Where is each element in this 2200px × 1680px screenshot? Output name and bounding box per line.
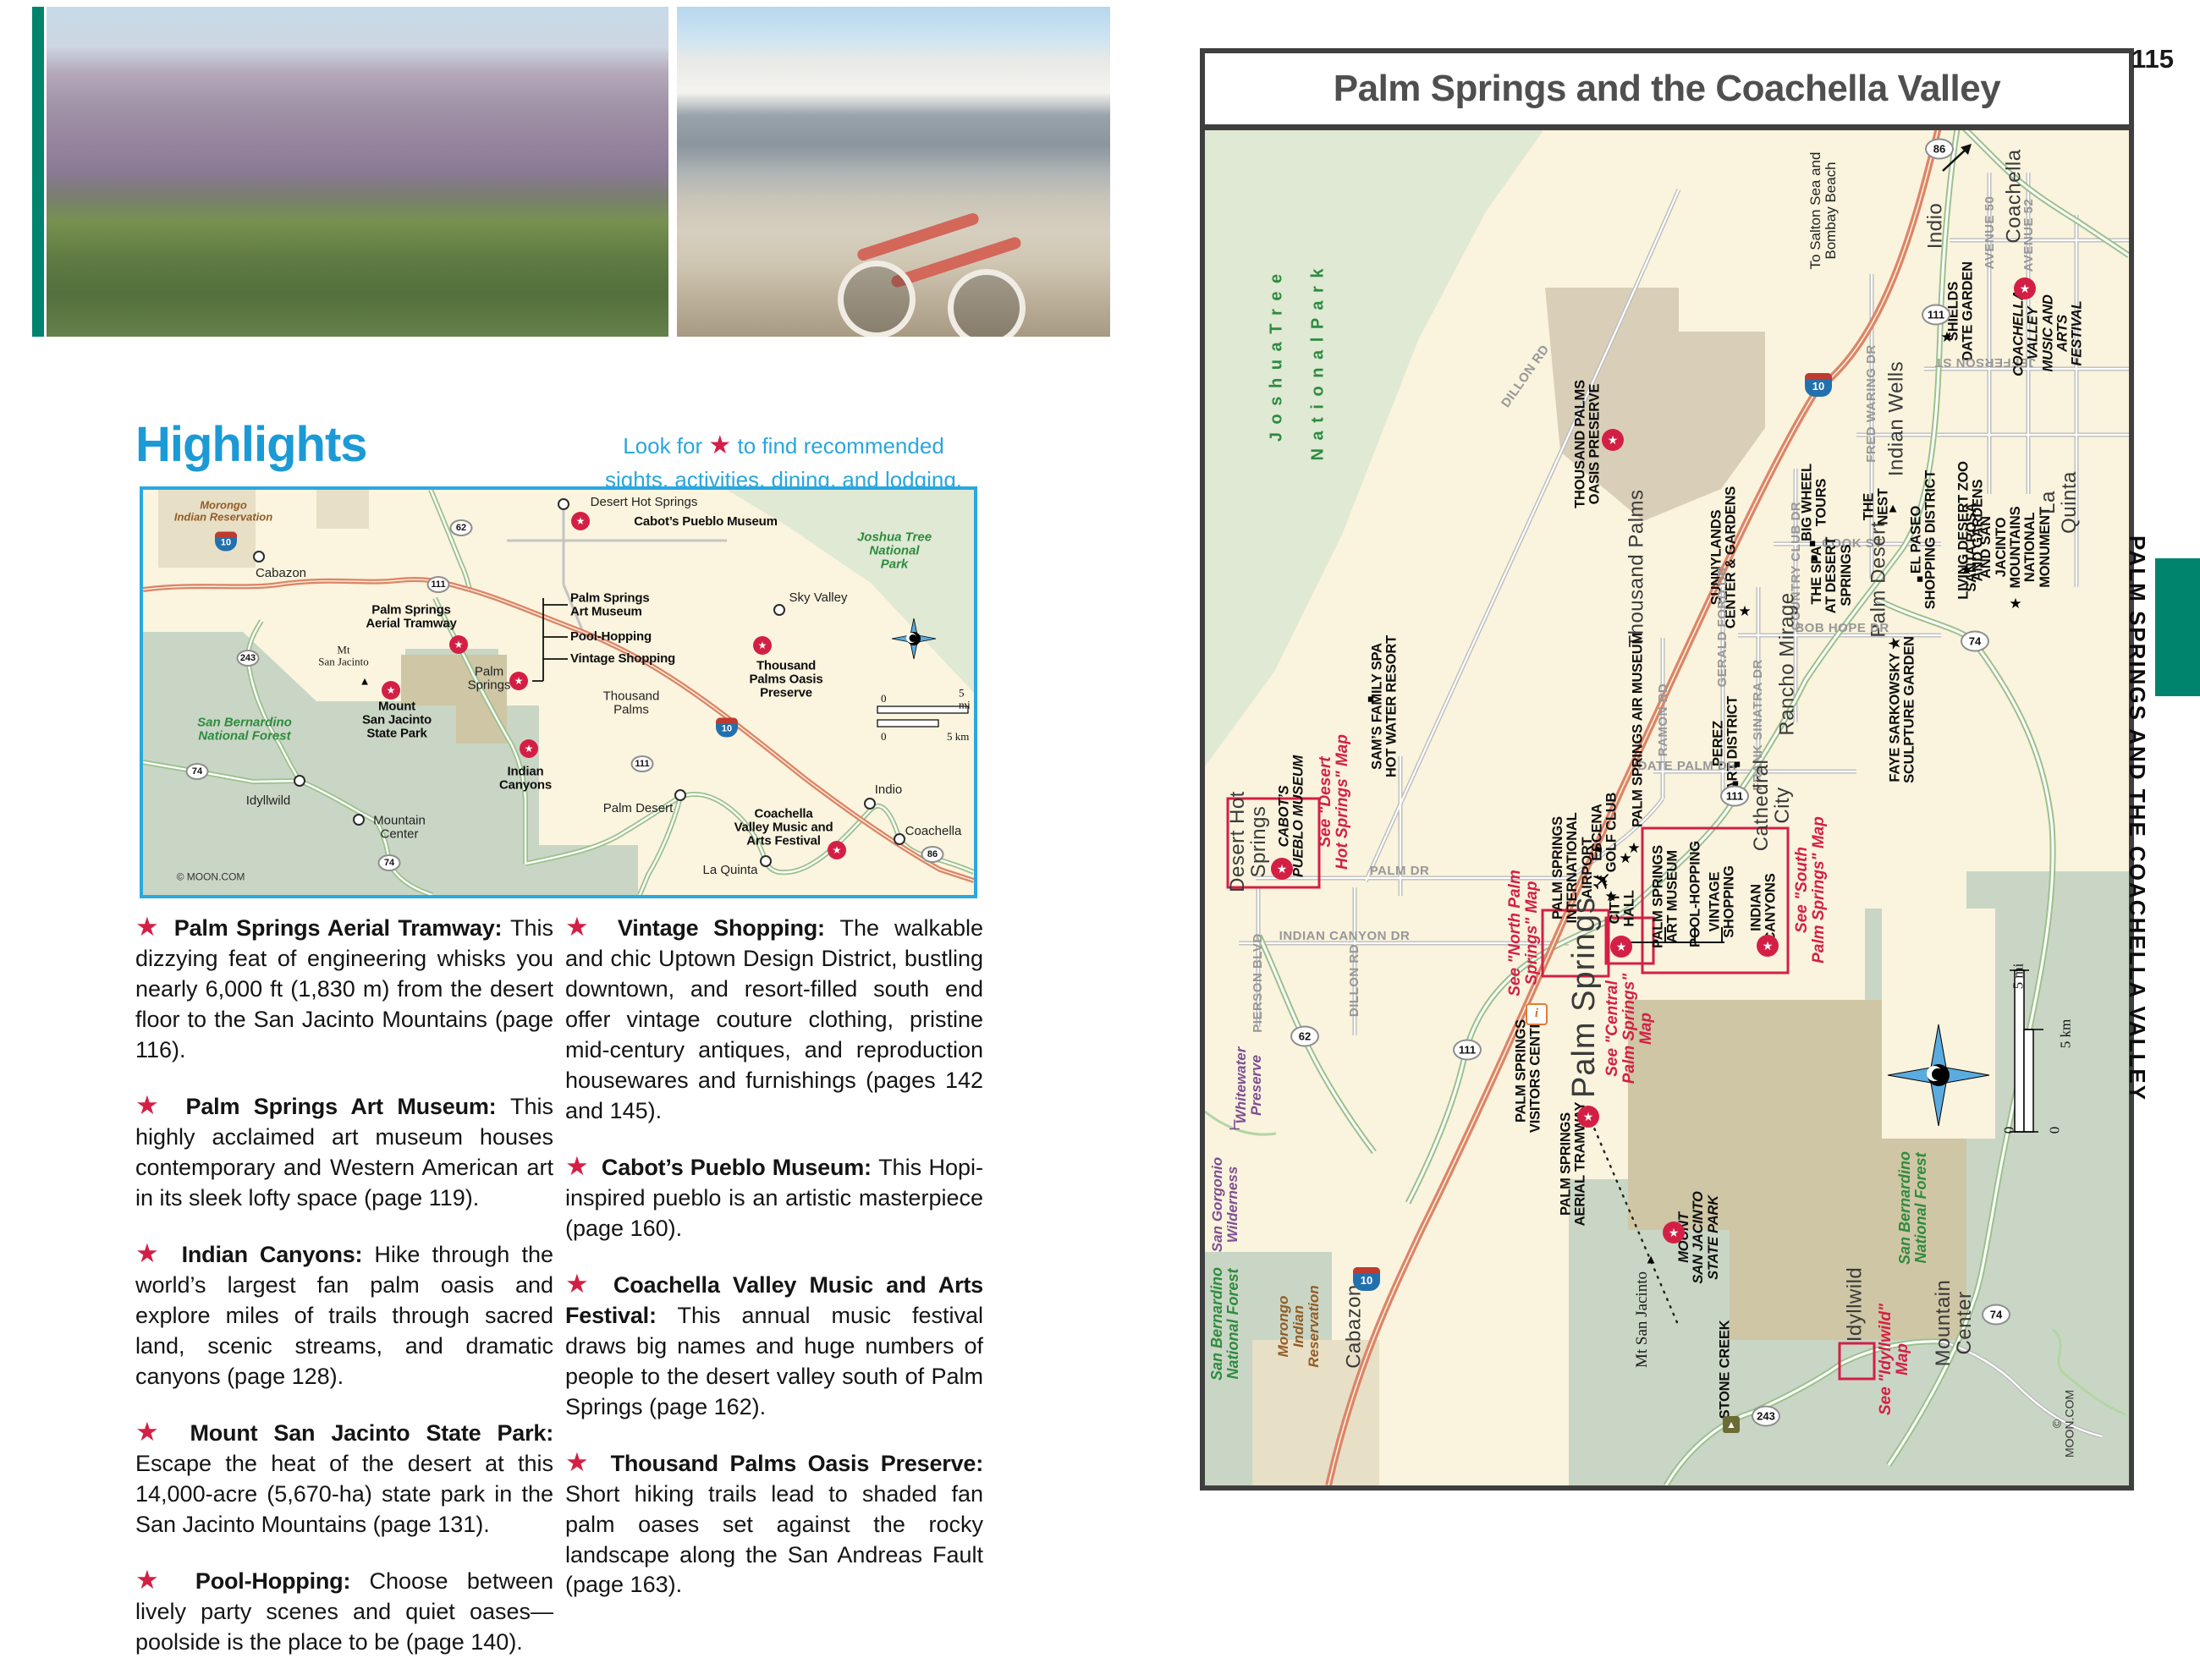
- black-star-marker: ★: [1940, 329, 1953, 346]
- star-icon: ★: [135, 1238, 170, 1268]
- chapter-tab-label: PALM SPRINGS AND THE COACHELLA VALLEY: [2124, 535, 2150, 1195]
- square-marker: ■: [1917, 573, 1923, 585]
- bicycle-wheel: [838, 261, 916, 337]
- highlight-item: ★ Indian Canyons: Hike through the world…: [135, 1236, 553, 1392]
- triangle-marker: ▲: [1645, 1253, 1658, 1267]
- highlight-title: Cabot’s Pueblo Museum:: [595, 1155, 878, 1180]
- golf-flag-icon: ⚑: [1593, 844, 1604, 859]
- route-shield: 111: [427, 576, 450, 593]
- town-circle-marker: [353, 814, 365, 826]
- star-marker: ★: [520, 739, 538, 758]
- town-circle-marker: [760, 855, 772, 867]
- star-marker: ★: [509, 672, 528, 690]
- square-marker: ■: [1811, 552, 1818, 564]
- highlight-title: Palm Springs Aerial Tramway:: [166, 915, 510, 941]
- highlight-item: ★ Palm Springs Aerial Tramway: This dizz…: [135, 909, 553, 1066]
- interstate-shield: 10: [215, 532, 237, 552]
- route-shield: 243: [237, 650, 260, 667]
- star-marker: ★: [1663, 1222, 1685, 1244]
- route-shield: 74: [1982, 1304, 2010, 1326]
- highlight-item: ★ Palm Springs Art Museum: This highly a…: [135, 1088, 553, 1214]
- regional-map: Palm Springs and the Coachella Valley: [1200, 48, 2134, 1491]
- black-star-marker: ★: [1960, 562, 1972, 579]
- triangle-marker: ▲: [360, 675, 371, 688]
- page-number: 115: [2131, 44, 2174, 74]
- star-icon: ★: [708, 431, 731, 459]
- section-title: Highlights: [135, 416, 367, 473]
- interstate-shield: 10: [1805, 373, 1832, 397]
- highlight-item: ★ Vintage Shopping: The walkable and chi…: [565, 909, 983, 1127]
- route-shield: 111: [1720, 786, 1749, 807]
- square-marker: ■: [1734, 758, 1741, 771]
- town-circle-marker: [864, 798, 876, 810]
- star-marker: ★: [1610, 936, 1632, 958]
- chapter-tab-block: [2155, 558, 2200, 696]
- route-shield: 111: [631, 755, 654, 772]
- route-shield: 86: [1925, 139, 1954, 160]
- route-shield: 74: [1961, 631, 1989, 652]
- highlight-title: Indian Canyons:: [170, 1242, 375, 1267]
- star-marker: ★: [828, 841, 846, 859]
- interstate-shield: 10: [1353, 1267, 1380, 1291]
- star-marker: ★: [571, 512, 590, 530]
- town-circle-marker: [253, 551, 265, 563]
- star-icon: ★: [565, 1269, 601, 1298]
- star-marker: ★: [753, 636, 772, 655]
- star-marker: ★: [2014, 277, 2036, 299]
- campground-icon: ▲: [1723, 1416, 1740, 1433]
- town-circle-marker: [558, 498, 569, 510]
- photo-shopping-street: [677, 7, 1110, 337]
- picnic-area-icon: ⊥: [1229, 1117, 1240, 1134]
- square-marker: ■: [1809, 537, 1816, 550]
- guidebook-page: { "page": {"number": "115"}, "sidebar_ta…: [0, 0, 2200, 1500]
- route-shield: 62: [1290, 1026, 1319, 1047]
- left-accent-strip: [32, 7, 44, 337]
- highlight-title: Pool-Hopping:: [177, 1568, 370, 1594]
- town-circle-marker: [894, 833, 905, 845]
- route-shield: 111: [1453, 1040, 1482, 1061]
- black-star-marker: ★: [1627, 840, 1640, 857]
- square-marker: ■: [1367, 693, 1374, 705]
- town-circle-marker: [294, 775, 305, 787]
- route-shield: 86: [921, 846, 944, 863]
- map-title: Palm Springs and the Coachella Valley: [1205, 53, 2129, 130]
- highlight-title: Palm Springs Art Museum:: [172, 1094, 510, 1119]
- star-marker: ★: [449, 635, 468, 654]
- highlight-item: ★ Pool-Hopping: Choose between lively pa…: [135, 1562, 553, 1658]
- star-icon: ★: [135, 912, 166, 942]
- route-shield: 243: [1752, 1406, 1780, 1427]
- lookfor-text: to find recommended: [738, 433, 944, 458]
- star-marker: ★: [1602, 429, 1624, 451]
- highlights-column-2: ★ Vintage Shopping: The walkable and chi…: [565, 909, 983, 1622]
- town-circle-marker: [674, 789, 686, 801]
- star-marker: ★: [1271, 858, 1293, 880]
- route-shield: 62: [450, 519, 473, 536]
- map-area: J o s h u a T r e eN a t i o n a l P a r…: [1205, 130, 2129, 1485]
- route-shield: 74: [378, 854, 401, 871]
- star-marker: ★: [1577, 1106, 1599, 1128]
- highlight-title: Vintage Shopping:: [602, 915, 839, 941]
- route-shield: 111: [1922, 305, 1950, 326]
- big-map-graphics: [1205, 130, 2129, 1485]
- small-map-graphics: [143, 490, 974, 895]
- route-shield: 74: [186, 763, 209, 780]
- star-icon: ★: [135, 1090, 172, 1120]
- black-star-marker: ★: [2009, 596, 2021, 612]
- highlight-title: Coachella Valley Music and Arts Festival…: [565, 1272, 983, 1328]
- bicycle-wheel: [948, 269, 1026, 337]
- town-circle-marker: [773, 604, 785, 616]
- black-star-marker: ★: [1738, 603, 1751, 620]
- star-icon: ★: [565, 1151, 595, 1181]
- highlight-title: Thousand Palms Oasis Preserve:: [599, 1451, 983, 1476]
- triangle-marker: ▲: [1887, 502, 1900, 516]
- interstate-shield: 10: [716, 718, 738, 738]
- highlight-item: ★ Mount San Jacinto State Park: Escape t…: [135, 1414, 553, 1540]
- star-marker: ★: [382, 681, 400, 700]
- star-icon: ★: [565, 1447, 599, 1477]
- highlights-column-1: ★ Palm Springs Aerial Tramway: This dizz…: [135, 909, 553, 1680]
- highlight-item: ★ Cabot’s Pueblo Museum: This Hopi-inspi…: [565, 1149, 983, 1244]
- info-icon: i: [1526, 1003, 1548, 1025]
- lookfor-note: Look for ★ to find recommended sights, a…: [584, 427, 983, 496]
- star-icon: ★: [135, 1417, 173, 1447]
- photo-palm-oasis: [47, 7, 668, 337]
- star-icon: ★: [565, 912, 602, 942]
- star-icon: ★: [135, 1565, 177, 1595]
- lookfor-text: Look for: [623, 433, 702, 458]
- highlights-overview-map: Morongo Indian ReservationCabazonDesert …: [140, 486, 977, 898]
- highlight-title: Mount San Jacinto State Park:: [173, 1420, 553, 1446]
- star-marker: ★: [1757, 935, 1779, 957]
- highlight-item: ★ Thousand Palms Oasis Preserve: Short h…: [565, 1445, 983, 1601]
- highlight-item: ★ Coachella Valley Music and Arts Festiv…: [565, 1266, 983, 1423]
